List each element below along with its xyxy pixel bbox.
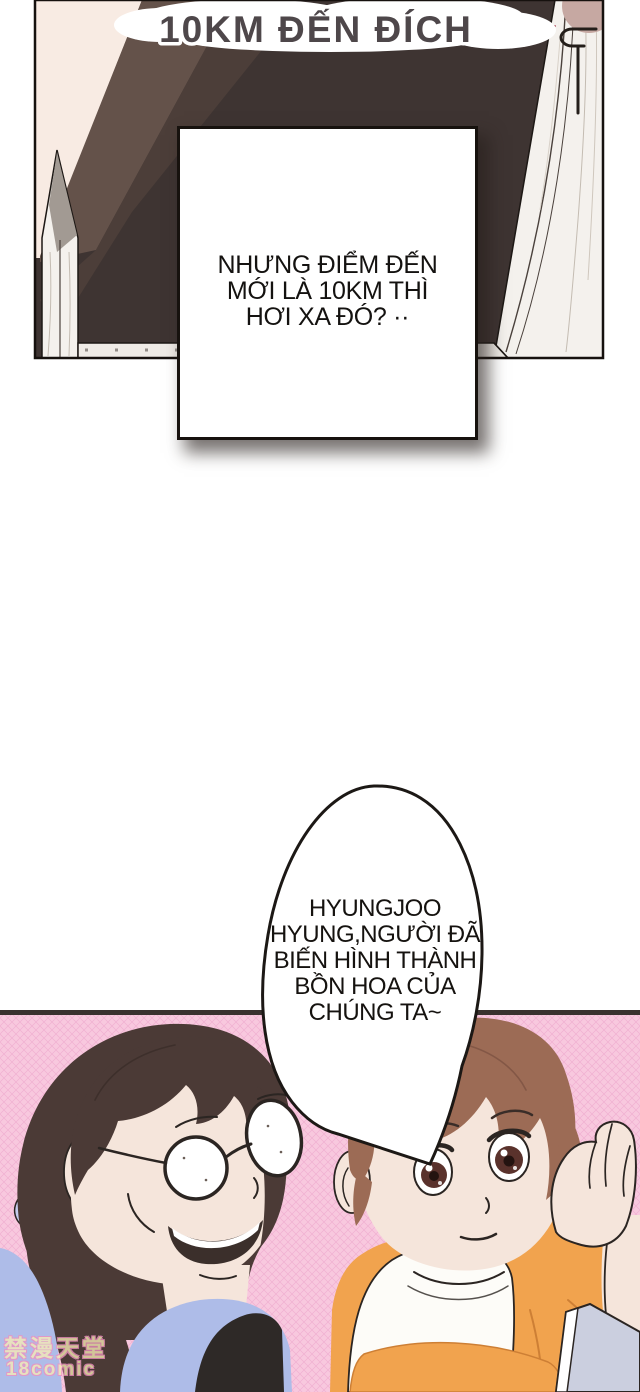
watermark: 禁漫天堂 18comic: [4, 1336, 108, 1380]
comic-page: { "comic": { "title": "10KM ĐẾN ĐÍCH", "…: [0, 0, 640, 1392]
watermark-line2: 18comic: [4, 1360, 108, 1380]
speech-box: NHƯNG ĐIỂM ĐẾN MỚI LÀ 10KM THÌ HƠI XA ĐÓ…: [177, 126, 478, 440]
page-title: 10KM ĐẾN ĐÍCH: [159, 9, 473, 50]
bubble-text: HYUNGJOO HYUNG,NGƯỜI ĐÃ BIẾN HÌNH THÀNH …: [258, 896, 492, 1026]
speech-box-text: NHƯNG ĐIỂM ĐẾN MỚI LÀ 10KM THÌ HƠI XA ĐÓ…: [218, 236, 438, 330]
watermark-line1: 禁漫天堂: [4, 1336, 108, 1360]
